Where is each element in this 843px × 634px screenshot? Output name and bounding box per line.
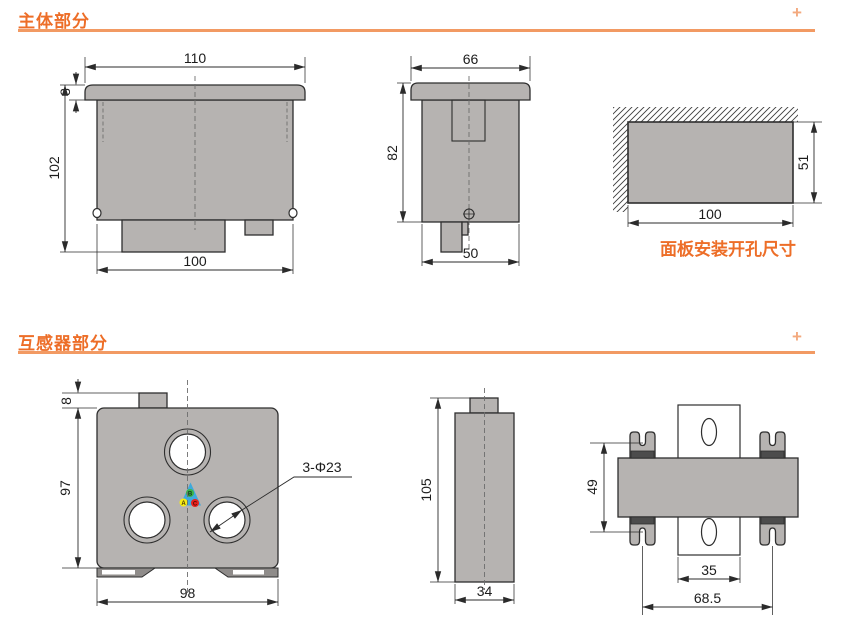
dim-clip-span: 49 bbox=[584, 479, 600, 495]
dim-body-width: 100 bbox=[183, 253, 207, 269]
dim-width: 98 bbox=[180, 585, 196, 601]
main-body-side-view: 66 82 50 bbox=[395, 48, 560, 306]
plus-mark-icon: + bbox=[792, 327, 802, 347]
dim-bottom-width: 50 bbox=[463, 245, 479, 261]
ct-front-shapes: B A C bbox=[97, 380, 278, 594]
dim-rail-width: 35 bbox=[701, 562, 717, 578]
phase-a-label: A bbox=[181, 501, 186, 507]
section-rule bbox=[18, 29, 815, 32]
dim-cutout-width: 100 bbox=[698, 206, 722, 222]
ct-top-shapes bbox=[618, 405, 798, 555]
top-tab bbox=[470, 398, 498, 413]
holes-label: 3-Φ23 bbox=[302, 459, 341, 475]
dim-overall-span: 68.5 bbox=[694, 590, 721, 606]
top-tab bbox=[139, 393, 167, 408]
dim-top-width: 110 bbox=[184, 50, 207, 66]
dim-top-width: 66 bbox=[463, 51, 479, 67]
ct-side-view: 105 34 bbox=[420, 368, 560, 618]
datasheet-page: 主体部分 + 110 bbox=[0, 0, 843, 634]
dim-cutout-height: 51 bbox=[795, 155, 811, 171]
panel-cutout-view: 51 100 面板安装开孔尺寸 bbox=[600, 85, 843, 275]
main-front-shapes bbox=[85, 76, 305, 252]
phase-b-label: B bbox=[188, 491, 193, 497]
rail-slot-bottom bbox=[702, 519, 717, 546]
dim-height: 82 bbox=[384, 145, 400, 161]
plus-mark-icon: + bbox=[792, 3, 802, 23]
phase-c-label: C bbox=[193, 501, 198, 507]
corner-screw-right bbox=[289, 209, 297, 218]
dim-tab-height: 8 bbox=[58, 397, 74, 405]
rail-slot-top bbox=[702, 419, 717, 446]
dim-width: 34 bbox=[477, 583, 493, 599]
wire-hole-left bbox=[124, 497, 170, 543]
section-rule bbox=[18, 351, 815, 354]
cutout-caption: 面板安装开孔尺寸 bbox=[660, 239, 796, 259]
dim-height: 102 bbox=[46, 156, 62, 180]
ct-body-bar bbox=[618, 458, 798, 517]
ct-top-view: 49 35 68.5 bbox=[590, 375, 843, 633]
dim-height: 97 bbox=[57, 480, 73, 496]
ct-front-view: B A C 8 97 98 bbox=[55, 368, 375, 618]
cutout-shapes bbox=[613, 107, 798, 212]
ct-side-shapes bbox=[455, 388, 514, 590]
corner-screw-left bbox=[93, 209, 101, 218]
main-body-front-view: 110 8 102 100 bbox=[55, 48, 325, 296]
main-side-shapes bbox=[411, 76, 530, 252]
dim-height: 105 bbox=[418, 478, 434, 502]
